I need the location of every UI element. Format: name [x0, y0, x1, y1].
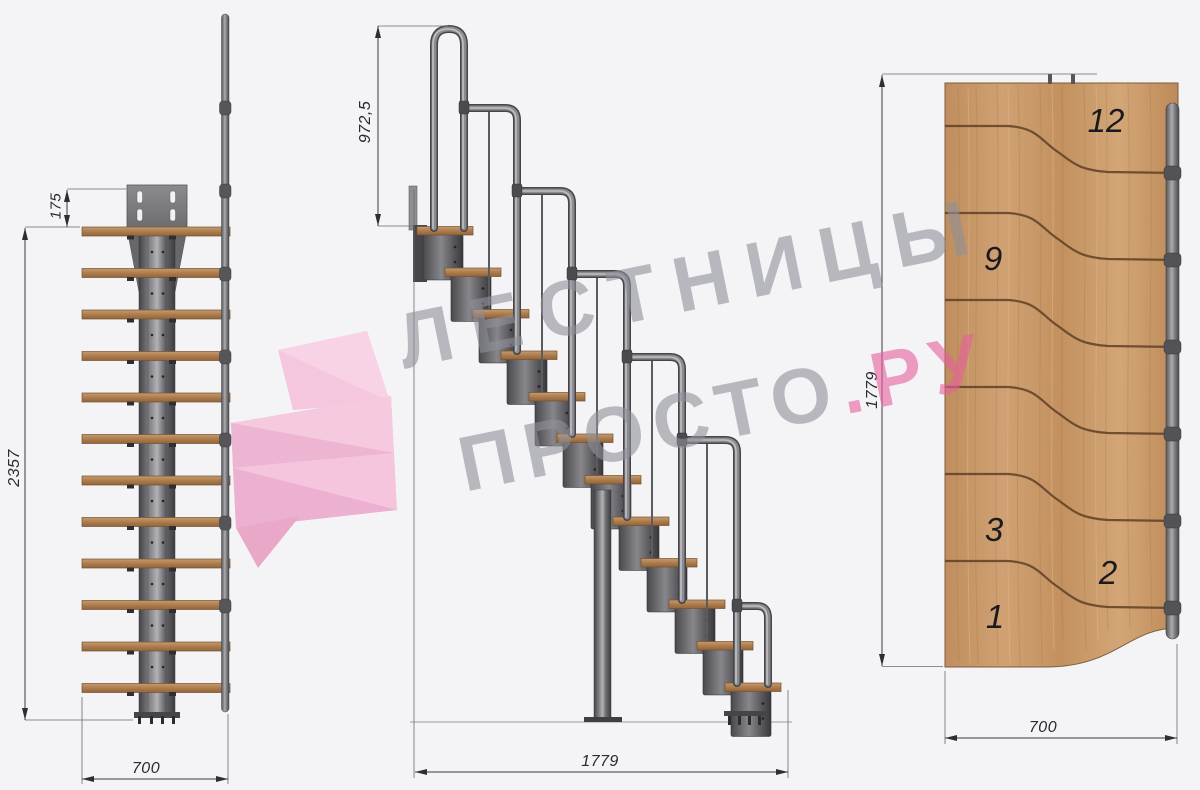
step-number-9: 9 [984, 240, 1002, 278]
step-number-1: 1 [986, 598, 1004, 636]
side-view [409, 29, 792, 737]
plan-handrail [1166, 103, 1179, 639]
step-number-3: 3 [985, 511, 1003, 549]
wall-mount-plate [127, 185, 187, 229]
plan-view [945, 74, 1181, 667]
stairs-technical-drawing [0, 0, 1200, 790]
drawing-canvas: 175 2357 700 972,5 1779 1779 700 12 9 3 … [0, 0, 1200, 790]
step-number-12: 12 [1088, 102, 1125, 140]
dim-label-plan-width-700: 700 [1029, 719, 1057, 737]
support-post-base [584, 717, 622, 722]
dim-label-front-width-700: 700 [132, 760, 160, 778]
wall-plate-profile [409, 186, 417, 230]
dim-label-rail-height-972: 972,5 [357, 101, 375, 144]
central-spine-column [139, 229, 175, 713]
step-number-2: 2 [1099, 554, 1117, 592]
support-post [594, 490, 611, 718]
front-view [82, 14, 231, 724]
dim-label-plan-length-1779: 1779 [864, 371, 882, 409]
dim-label-side-length-1779: 1779 [581, 753, 619, 771]
dim-label-offset-175: 175 [48, 193, 65, 220]
dim-label-height-2357: 2357 [6, 449, 24, 487]
bottom-module-base [724, 711, 768, 716]
